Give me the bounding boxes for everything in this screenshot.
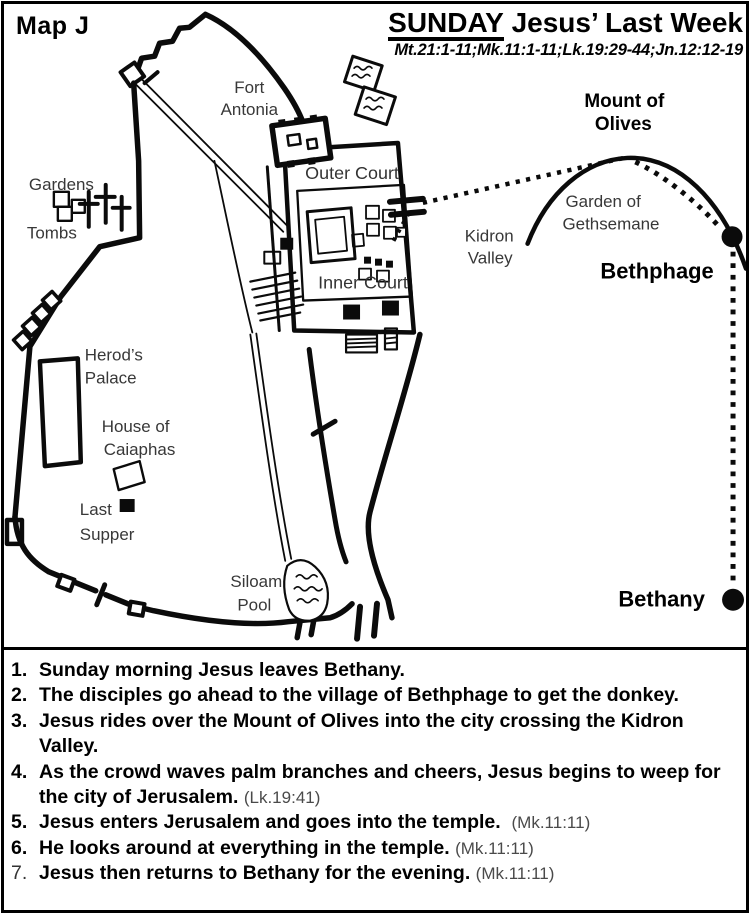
event-item: 7. Jesus then returns to Bethany for the… bbox=[11, 861, 746, 886]
south-wall-notch bbox=[57, 575, 74, 591]
event-number: 6. bbox=[11, 836, 39, 861]
event-number: 3. bbox=[11, 709, 39, 734]
bethany-label: Bethany bbox=[618, 587, 705, 612]
event-text: Jesus then returns to Bethany for the ev… bbox=[39, 861, 746, 886]
siloam-gate-tick bbox=[357, 607, 360, 639]
fort-antonia-label: Antonia bbox=[221, 100, 279, 119]
mount-of-olives-label: Olives bbox=[595, 114, 652, 135]
sunday-last-week-worksheet: Fort Antonia Outer Court Inner Court Gar… bbox=[0, 0, 750, 914]
jerusalem-map: Fort Antonia Outer Court Inner Court Gar… bbox=[1, 1, 749, 647]
mount-of-olives-label: Mount of bbox=[584, 91, 665, 112]
bethphage-label: Bethphage bbox=[600, 259, 713, 284]
event-text: Jesus enters Jerusalem and goes into the… bbox=[39, 810, 746, 835]
tombs-label: Tombs bbox=[27, 224, 77, 243]
outer-court-label: Outer Court bbox=[305, 163, 399, 183]
event-list: 1. Sunday morning Jesus leaves Bethany. … bbox=[1, 647, 749, 913]
bethesda-pools bbox=[344, 56, 395, 124]
event-number: 7. bbox=[11, 861, 39, 886]
event-text: The disciples go ahead to the village of… bbox=[39, 683, 746, 708]
scripture-references: Mt.21:1-11;Mk.11:1-11;Lk.19:29-44;Jn.12:… bbox=[394, 41, 743, 60]
event-text: As the crowd waves palm branches and che… bbox=[39, 760, 746, 811]
title-rest: Jesus’ Last Week bbox=[504, 7, 743, 38]
kidron-valley-label: Kidron bbox=[465, 227, 514, 246]
gethsemane-label: Garden of bbox=[565, 192, 641, 211]
mount-of-olives-arc bbox=[528, 158, 746, 269]
last-supper-label: Last bbox=[80, 500, 112, 519]
northwest-gate-tick bbox=[145, 72, 158, 83]
event-text: Jesus rides over the Mount of Olives int… bbox=[39, 709, 746, 760]
event-number: 2. bbox=[11, 683, 39, 708]
event-item: 3. Jesus rides over the Mount of Olives … bbox=[11, 709, 746, 760]
city-wall-east-outer bbox=[368, 334, 420, 617]
herods-palace-label: Palace bbox=[85, 368, 137, 387]
event-number: 5. bbox=[11, 810, 39, 835]
bethphage-marker bbox=[722, 226, 743, 247]
gardens-label: Gardens bbox=[29, 175, 94, 194]
event-reference: (Mk.11:11) bbox=[512, 813, 591, 832]
caiaphas-house-building bbox=[114, 461, 145, 490]
south-wall-notch bbox=[129, 602, 145, 616]
fort-antonia-castle bbox=[271, 113, 331, 169]
event-item: 2. The disciples go ahead to the village… bbox=[11, 683, 746, 708]
page-title: SUNDAY Jesus’ Last Week bbox=[388, 7, 743, 41]
house-of-caiaphas-label: Caiaphas bbox=[104, 440, 176, 459]
event-reference: (Mk.11:11) bbox=[455, 839, 534, 858]
last-supper-marker bbox=[120, 499, 135, 512]
house-of-caiaphas-label: House of bbox=[102, 417, 170, 436]
tomb-squares bbox=[54, 192, 85, 221]
northwest-wall-towers bbox=[13, 291, 60, 349]
event-reference: (Lk.19:41) bbox=[244, 788, 321, 807]
title-day-word: SUNDAY bbox=[388, 9, 504, 41]
bethany-marker bbox=[722, 589, 744, 611]
siloam-pool-label: Pool bbox=[237, 596, 271, 615]
herods-palace-building bbox=[40, 358, 81, 466]
gethsemane-label: Gethsemane bbox=[562, 215, 659, 234]
event-number: 1. bbox=[11, 658, 39, 683]
event-item: 5. Jesus enters Jerusalem and goes into … bbox=[11, 810, 746, 835]
event-item: 6. He looks around at everything in the … bbox=[11, 836, 746, 861]
event-text: Sunday morning Jesus leaves Bethany. bbox=[39, 658, 746, 683]
event-number: 4. bbox=[11, 760, 39, 785]
event-reference: (Mk.11:11) bbox=[476, 864, 555, 883]
event-item: 1. Sunday morning Jesus leaves Bethany. bbox=[11, 658, 746, 683]
temple-west-street bbox=[267, 167, 279, 331]
fort-antonia-label: Fort bbox=[234, 78, 264, 97]
map-id-label: Map J bbox=[16, 12, 89, 41]
city-wall-east-inner bbox=[309, 349, 346, 561]
herods-palace-label: Herod’s bbox=[85, 345, 143, 364]
event-item: 4. As the crowd waves palm branches and … bbox=[11, 760, 746, 811]
siloam-pool-label: Siloam bbox=[230, 572, 282, 591]
siloam-gate-tick bbox=[374, 604, 377, 636]
east-gate-bar bbox=[390, 199, 423, 202]
east-wall-gate-tick bbox=[313, 421, 335, 434]
inner-court-label: Inner Court bbox=[318, 273, 408, 293]
kidron-valley-label: Valley bbox=[468, 249, 513, 268]
event-text: He looks around at everything in the tem… bbox=[39, 836, 746, 861]
last-supper-label: Supper bbox=[80, 525, 135, 544]
